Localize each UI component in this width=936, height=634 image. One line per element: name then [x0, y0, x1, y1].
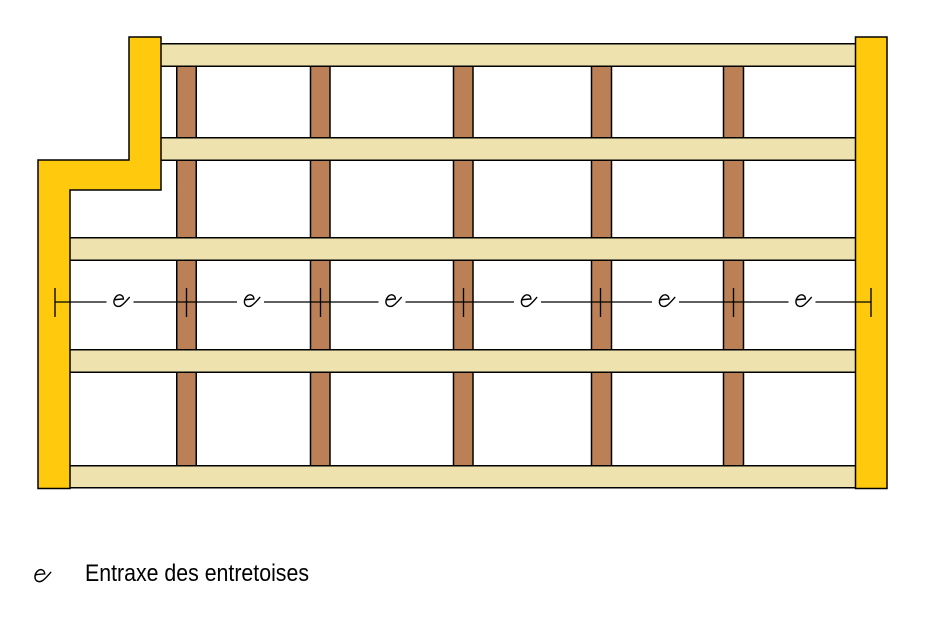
svg-text:Entraxe des entretoises: Entraxe des entretoises [85, 560, 309, 587]
